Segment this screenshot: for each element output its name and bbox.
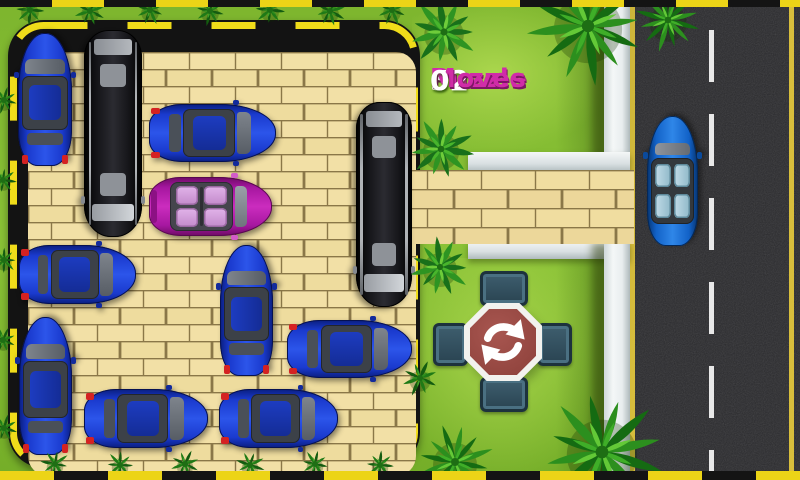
chair-left — [433, 323, 468, 366]
picnic-area — [0, 0, 800, 480]
reset-button[interactable] — [464, 303, 542, 381]
refresh-icon — [475, 314, 531, 370]
chair-right — [537, 323, 572, 366]
moves-number: 0 — [430, 64, 449, 97]
game-stage: Puzzle 52 Moves 0 — [0, 0, 800, 480]
chair-bottom — [480, 377, 528, 412]
hazard-stripe-bottom — [0, 471, 800, 480]
hazard-stripe-top — [0, 0, 800, 7]
chair-top — [480, 271, 528, 306]
